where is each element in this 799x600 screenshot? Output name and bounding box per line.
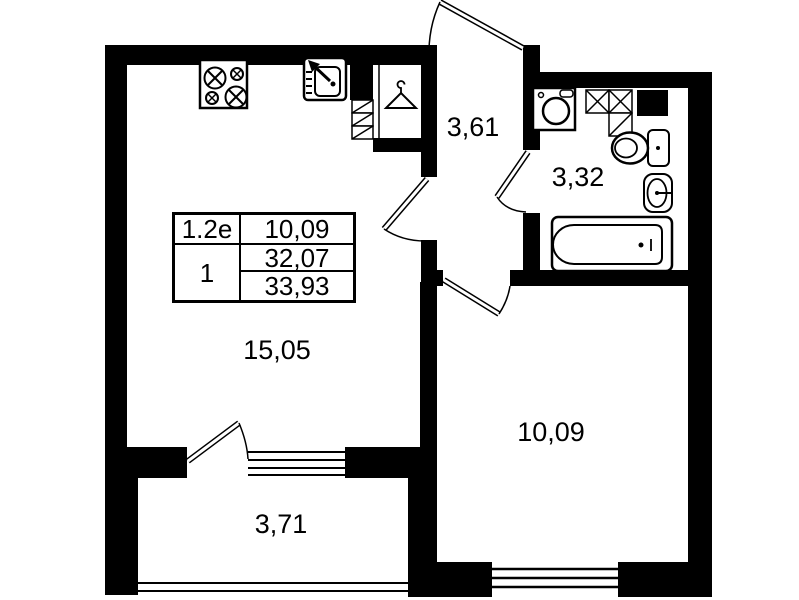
bedroom-door: [444, 280, 510, 314]
wall-living-right-top: [421, 45, 437, 177]
wall-living-balcony-left: [105, 447, 187, 478]
room-label-balcony: 3,71: [255, 509, 308, 539]
wall-balcony-left: [105, 478, 138, 595]
stove-icon: [200, 60, 247, 108]
window-balcony: [138, 583, 408, 591]
washing-machine-icon: [533, 88, 575, 130]
floor-plan-page: 3,61 3,32 15,05 10,09 3,71 1.2е 10,09 1 …: [0, 0, 799, 600]
wall-vent-shaft-block: [637, 90, 668, 116]
wall-right: [688, 72, 712, 597]
vent-hatch-kitchen-icon: [352, 100, 373, 139]
vent-hatch-bathroom-icon: [586, 90, 632, 136]
window-living-balcony: [248, 447, 345, 478]
wall-bedroom-bottom-right: [618, 562, 712, 597]
wall-closet-bottom: [373, 138, 423, 152]
room-area-cell: 10,09: [241, 215, 353, 245]
wall-bathroom-top: [540, 72, 712, 88]
total-area-cell: 33,93: [241, 272, 353, 300]
wall-left: [105, 45, 127, 478]
area-table: 1.2е 10,09 1 32,07 33,93: [172, 212, 356, 303]
room-label-living-kitchen: 15,05: [243, 335, 311, 365]
wall-bedroom-top-right: [510, 270, 712, 286]
room-label-bathroom: 3,32: [552, 162, 605, 192]
hanger-icon: [386, 81, 416, 108]
balcony-door: [188, 423, 248, 461]
window-bedroom: [492, 562, 618, 597]
living-area-cell: 32,07: [241, 245, 353, 272]
unit-type-cell: 1.2е: [175, 215, 241, 245]
bathroom-door: [497, 152, 528, 212]
living-room-door: [384, 179, 427, 241]
room-label-hallway: 3,61: [447, 112, 500, 142]
entrance-door: [429, 2, 523, 58]
wall-top: [105, 45, 430, 65]
bathtub-icon: [552, 217, 672, 271]
room-label-bedroom: 10,09: [517, 417, 585, 447]
floor-plan-drawing: 3,61 3,32 15,05 10,09 3,71: [0, 0, 799, 600]
wall-kitchen-stub: [350, 60, 373, 100]
rooms-count-cell: 1: [175, 245, 241, 300]
wall-bedroom-top-left: [421, 270, 443, 286]
kitchen-sink-icon: [304, 58, 346, 100]
wall-bedroom-bottom-left: [420, 562, 492, 597]
wall-bathroom-left-bottom: [523, 213, 540, 270]
toilet-icon: [612, 130, 669, 166]
washbasin-icon: [644, 174, 672, 212]
